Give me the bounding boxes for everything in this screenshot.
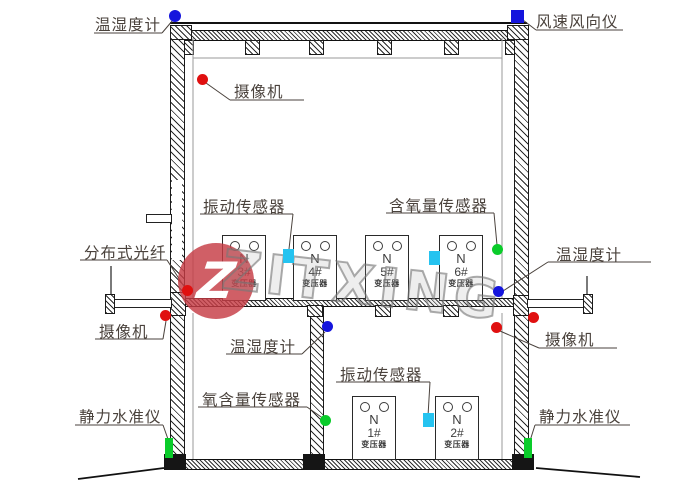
fiber-marker <box>182 285 193 296</box>
label-oxygen-lower: 氧含量传感器 <box>202 388 301 410</box>
camera-marker-left <box>160 310 171 321</box>
sensor-layout-diagram: N 3# 变压器 N 4# 变压器 N 5# 变压器 N 6# 变压器 N 1#… <box>0 0 700 493</box>
temp-humidity-marker <box>493 286 504 297</box>
label-temp-humidity-top-left: 温湿度计 <box>95 13 161 35</box>
vibration-sensor-marker <box>283 249 294 263</box>
static-level-marker <box>524 438 532 458</box>
label-distributed-fiber: 分布式光纤 <box>84 241 167 263</box>
label-camera-lower-right: 摄像机 <box>545 328 595 350</box>
label-vibration-upper: 振动传感器 <box>203 195 286 217</box>
vibration-sensor-marker <box>429 251 440 265</box>
label-wind-speed-direction: 风速风向仪 <box>536 10 619 32</box>
oxygen-sensor-marker <box>320 415 331 426</box>
wind-sensor-marker <box>511 10 524 23</box>
camera-marker-right-outer <box>528 312 539 323</box>
label-oxygen-upper: 含氧量传感器 <box>389 194 488 216</box>
camera-marker-upper <box>197 74 208 85</box>
label-vibration-lower: 振动传感器 <box>340 363 423 385</box>
label-static-level-left: 静力水准仪 <box>79 405 162 427</box>
label-static-level-right: 静力水准仪 <box>539 405 622 427</box>
camera-marker-right <box>491 322 502 333</box>
temp-humidity-marker <box>322 321 333 332</box>
label-temp-humidity-right: 温湿度计 <box>556 243 622 265</box>
label-camera-lower-left: 摄像机 <box>99 320 149 342</box>
oxygen-sensor-marker <box>492 244 503 255</box>
static-level-marker <box>165 438 173 458</box>
vibration-sensor-marker <box>423 413 434 427</box>
label-temp-humidity-lower: 温湿度计 <box>230 335 296 357</box>
label-camera-upper: 摄像机 <box>234 80 284 102</box>
temp-humidity-marker <box>169 10 181 22</box>
